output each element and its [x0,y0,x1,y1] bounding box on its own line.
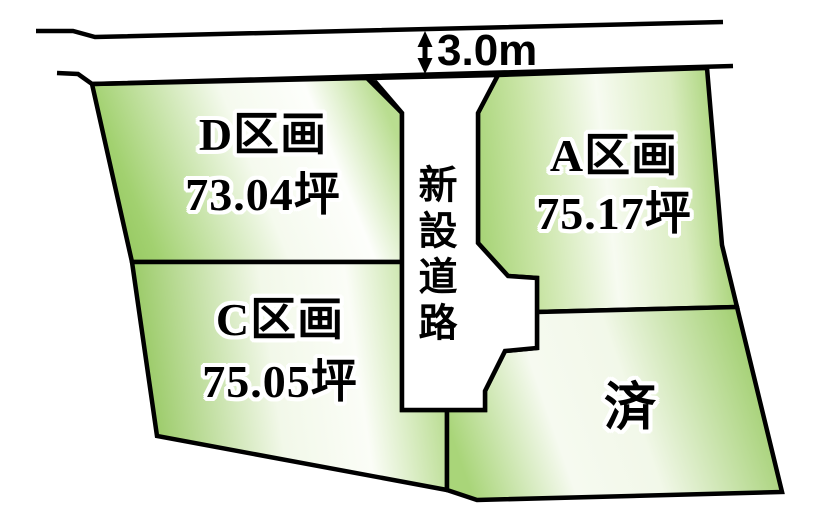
plot-c-area: 75.05坪 [160,351,400,413]
plot-sold-label: 済 [570,380,690,436]
new-road-label: 新設道路 [416,164,462,364]
plot-a-area: 75.17坪 [494,185,734,243]
road-width-arrow [418,31,433,74]
plot-d-name: D区画 [199,109,327,160]
land-plot-diagram: 3.0m 新設道路 D区画 73.04坪 A区画 75.17坪 C区画 75.0… [0,0,821,525]
road-width-label: 3.0m [437,25,537,77]
plot-d-area: 73.04坪 [143,165,383,225]
plot-a-name: A区画 [550,130,678,181]
plot-d-label: D区画 73.04坪 [143,105,383,225]
plot-c-name: C区画 [216,294,344,345]
top-road-far-edge-line [36,22,723,37]
plot-c-label: C区画 75.05坪 [160,289,400,413]
plot-a-label: A区画 75.17坪 [494,127,734,243]
